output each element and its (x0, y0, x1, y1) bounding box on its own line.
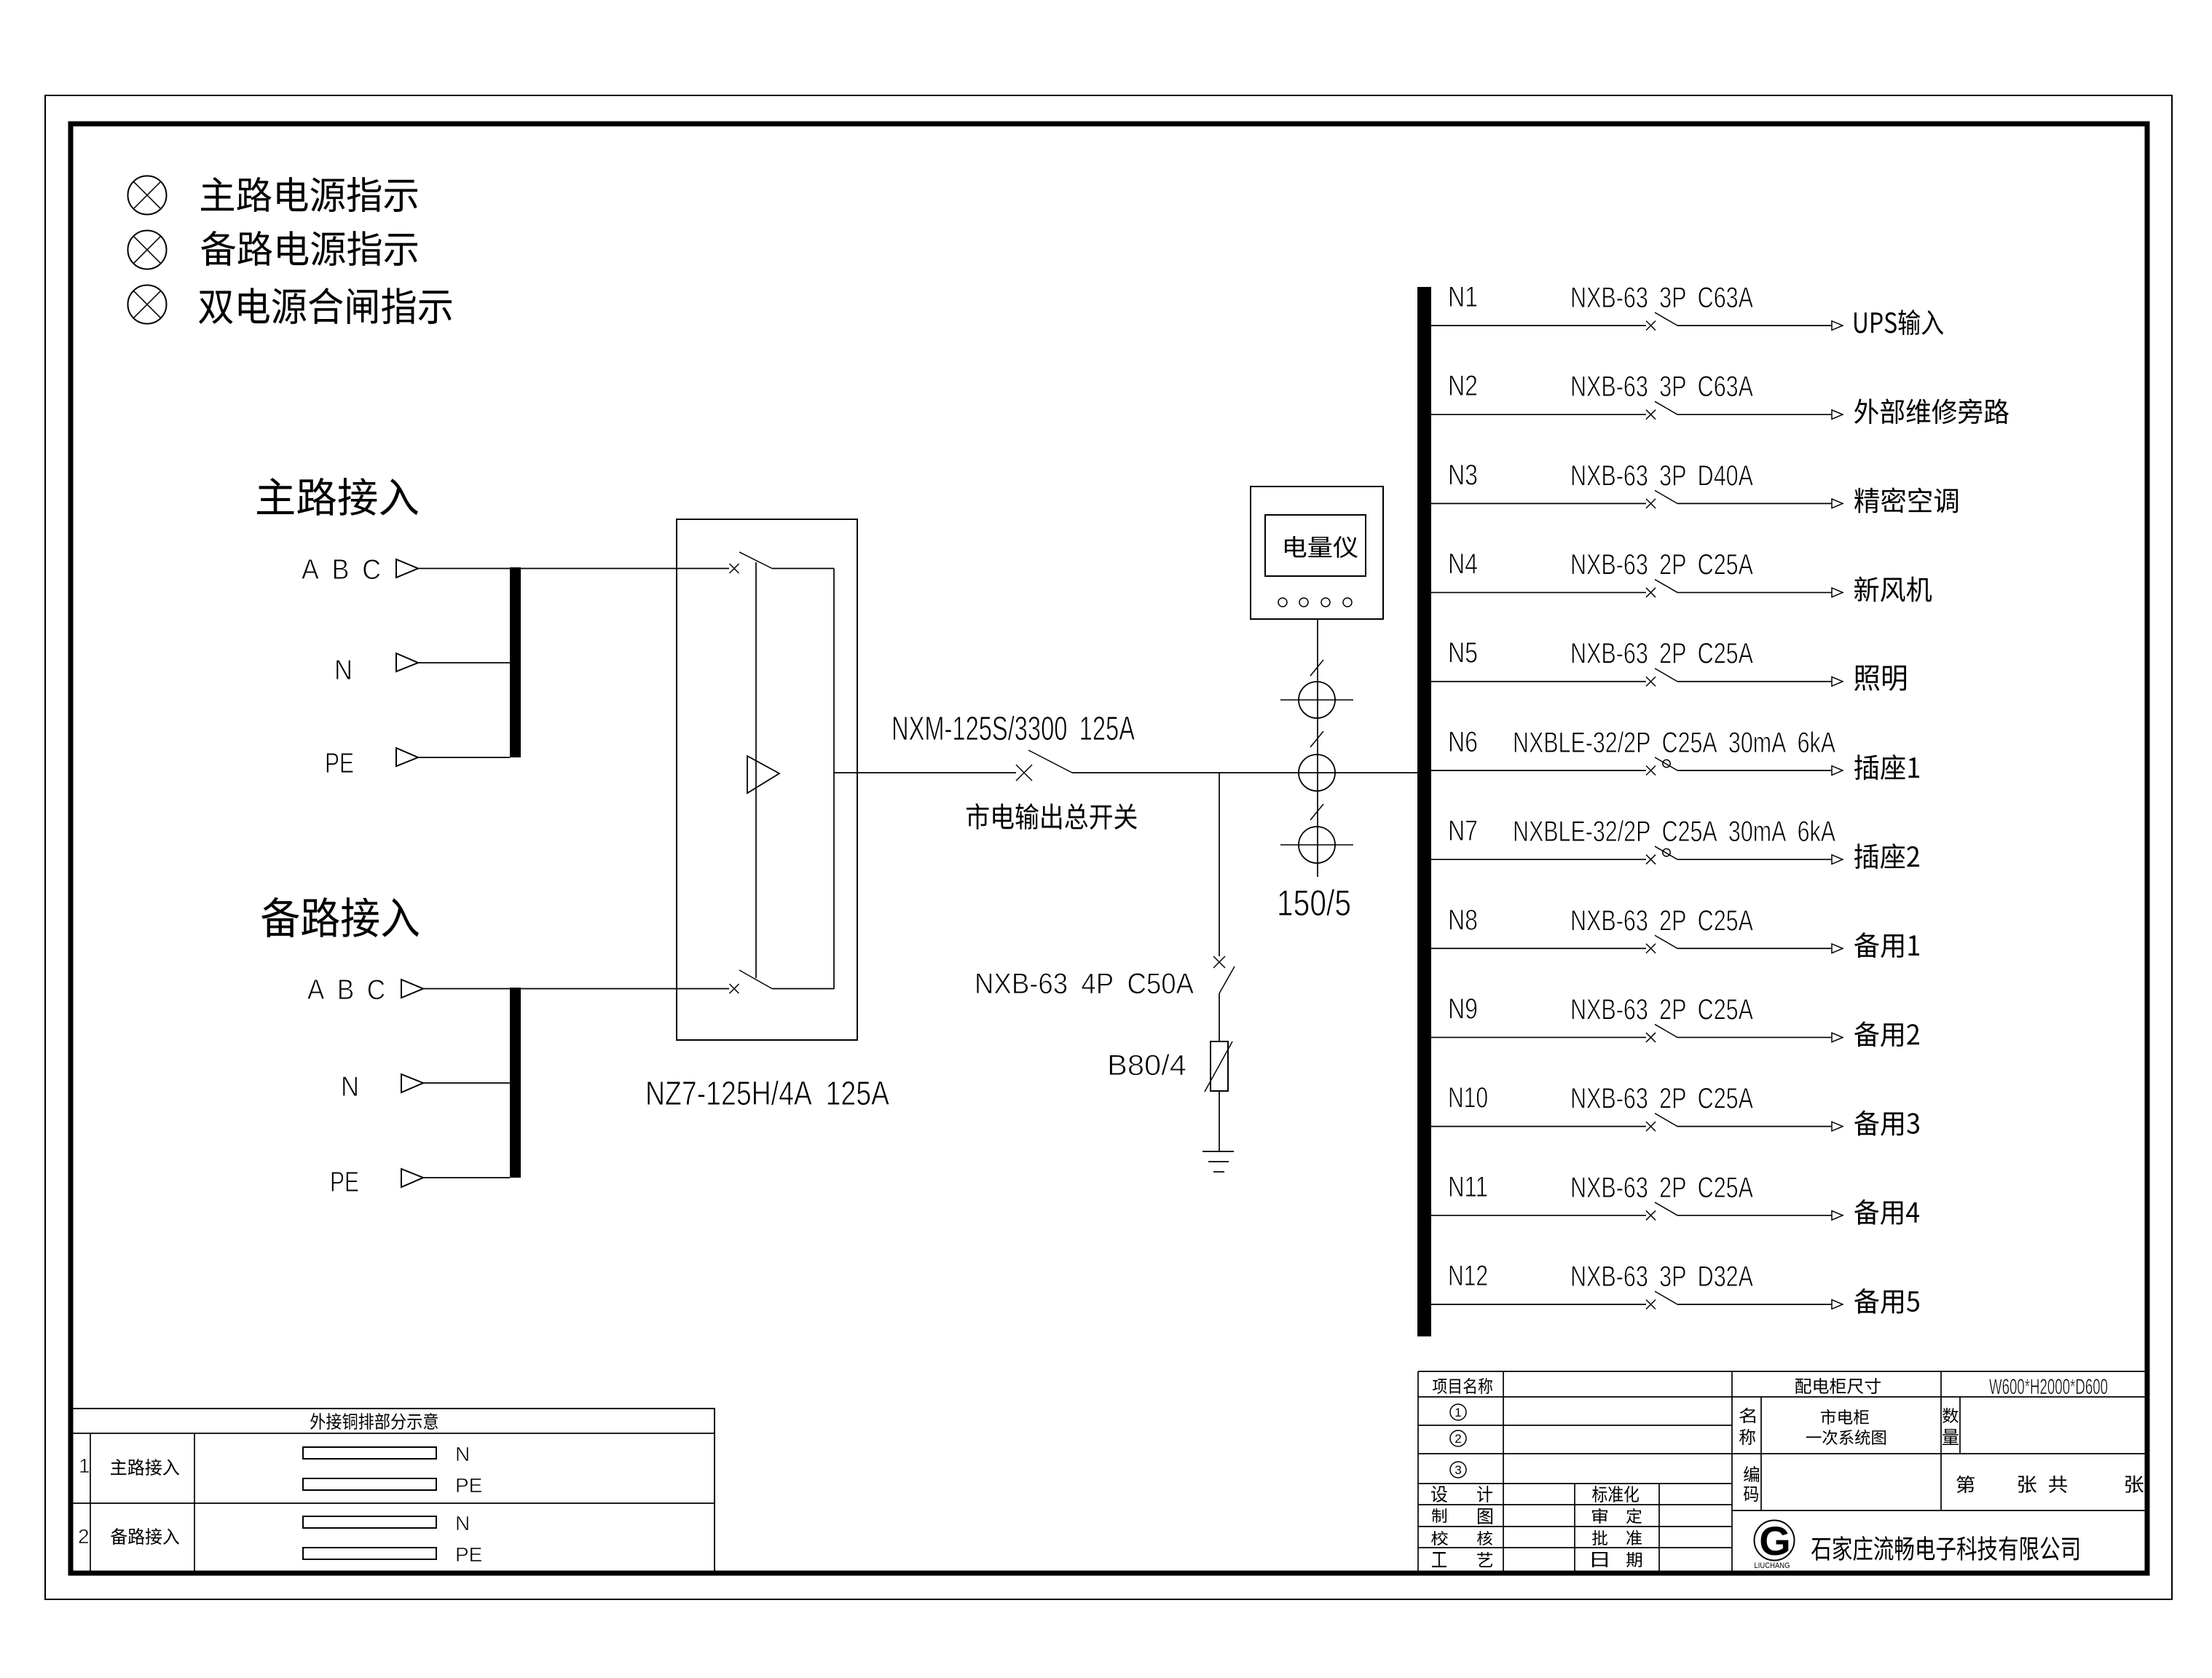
svg-text:NXB-63 2P C25A: NXB-63 2P C25A (1570, 1083, 1753, 1115)
svg-text:PE: PE (455, 1474, 482, 1497)
svg-text:N1: N1 (1448, 281, 1478, 313)
svg-text:N11: N11 (1448, 1171, 1488, 1203)
svg-text:A B C: A B C (307, 974, 385, 1006)
svg-text:NXB-63 2P C25A: NXB-63 2P C25A (1570, 638, 1753, 670)
svg-text:NXB-63 3P C63A: NXB-63 3P C63A (1570, 282, 1753, 314)
svg-text:PE: PE (325, 748, 354, 779)
svg-text:NXB-63 2P C25A: NXB-63 2P C25A (1570, 993, 1753, 1025)
svg-text:N: N (341, 1071, 359, 1103)
svg-text:G: G (1759, 1518, 1791, 1564)
svg-text:NXM-125S/3300 125A: NXM-125S/3300 125A (892, 709, 1135, 747)
svg-text:N: N (455, 1443, 470, 1465)
svg-text:NZ7-125H/4A 125A: NZ7-125H/4A 125A (645, 1074, 889, 1112)
svg-text:N7: N7 (1448, 815, 1478, 847)
svg-text:N6: N6 (1448, 726, 1478, 758)
svg-text:NXB-63 3P C63A: NXB-63 3P C63A (1570, 371, 1753, 403)
svg-text:N: N (455, 1512, 470, 1535)
svg-text:1: 1 (79, 1454, 90, 1477)
svg-text:PE: PE (455, 1543, 482, 1566)
svg-text:NXB-63 2P C25A: NXB-63 2P C25A (1570, 549, 1753, 581)
svg-text:NXB-63 3P D40A: NXB-63 3P D40A (1570, 460, 1753, 492)
svg-text:NXB-63 4P C50A: NXB-63 4P C50A (975, 968, 1194, 1000)
svg-text:PE: PE (330, 1167, 359, 1198)
svg-text:NXB-63 2P C25A: NXB-63 2P C25A (1570, 1172, 1753, 1204)
svg-text:NXBLE-32/2P C25A 30mA 6kA: NXBLE-32/2P C25A 30mA 6kA (1513, 727, 1835, 759)
svg-text:NXB-63 3P D32A: NXB-63 3P D32A (1570, 1261, 1753, 1293)
svg-text:N: N (334, 655, 353, 686)
svg-text:N2: N2 (1448, 370, 1478, 402)
svg-text:N10: N10 (1448, 1082, 1488, 1114)
svg-text:150/5: 150/5 (1277, 883, 1351, 923)
svg-text:N5: N5 (1448, 637, 1478, 669)
svg-text:A B C: A B C (302, 554, 381, 586)
svg-text:W600*H2000*D600: W600*H2000*D600 (1989, 1375, 2108, 1399)
svg-text:NXB-63 2P C25A: NXB-63 2P C25A (1570, 905, 1753, 937)
svg-text:1: 1 (1455, 1406, 1461, 1419)
svg-text:2: 2 (1455, 1432, 1461, 1446)
svg-text:B80/4: B80/4 (1107, 1049, 1186, 1082)
svg-text:N4: N4 (1448, 548, 1478, 580)
svg-text:LIUCHANG: LIUCHANG (1755, 1561, 1790, 1570)
svg-text:N9: N9 (1448, 993, 1478, 1025)
svg-text:N12: N12 (1448, 1260, 1488, 1292)
svg-text:NXBLE-32/2P C25A 30mA 6kA: NXBLE-32/2P C25A 30mA 6kA (1513, 816, 1835, 848)
svg-text:3: 3 (1455, 1463, 1461, 1477)
svg-text:N3: N3 (1448, 459, 1478, 491)
svg-text:2: 2 (78, 1525, 90, 1548)
svg-text:N8: N8 (1448, 904, 1478, 936)
